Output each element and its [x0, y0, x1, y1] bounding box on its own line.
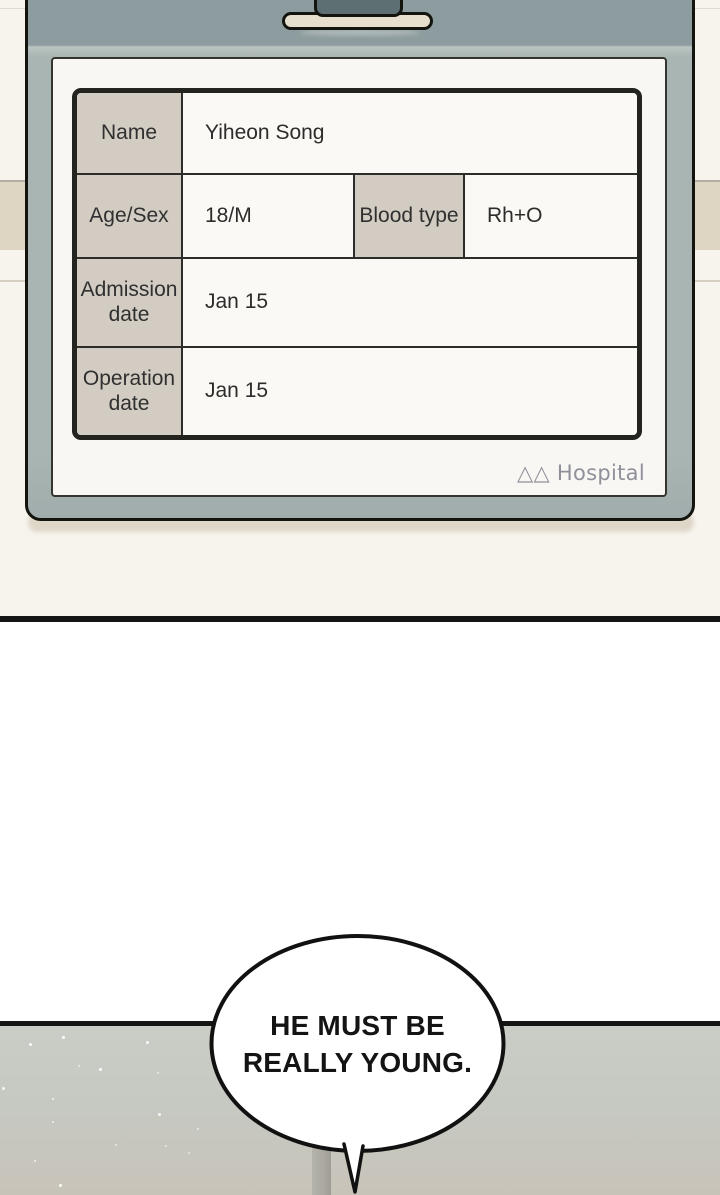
sparkle-dot [52, 1121, 54, 1123]
speech-bubble-tail [344, 1144, 363, 1192]
sparkle-dot [29, 1043, 32, 1046]
sparkle-dot [115, 1144, 117, 1146]
speech-bubble-text: HE MUST BE REALLY YOUNG. [212, 1007, 503, 1081]
name-label-cell: Name [77, 93, 183, 175]
operation-date-value-cell: Jan 15 [183, 348, 637, 435]
clip-highlight [300, 29, 420, 36]
sparkle-dot [158, 1113, 161, 1116]
sparkle-dot [146, 1041, 149, 1044]
sparkle-dot [78, 1065, 80, 1067]
name-value-cell: Yiheon Song [183, 93, 637, 175]
age-sex-value-cell: 18/M [183, 175, 353, 259]
speech-line-2: REALLY YOUNG. [212, 1044, 503, 1081]
sparkle-dot [157, 1072, 159, 1074]
blood-type-value-cell: Rh+O [465, 175, 637, 259]
age-sex-label-cell: Age/Sex [77, 175, 183, 259]
sparkle-dot [52, 1098, 54, 1100]
sparkle-dot [99, 1068, 102, 1071]
speech-line-1: HE MUST BE [212, 1007, 503, 1044]
panel-divider-top [0, 616, 720, 622]
sparkle-dot [2, 1087, 5, 1090]
comic-panel: Name Yiheon Song Age/Sex 18/M Blood type… [0, 0, 720, 1195]
admission-date-label-cell: Admission date [77, 259, 183, 348]
blood-type-label-cell: Blood type [353, 175, 465, 259]
sparkle-dot [59, 1184, 62, 1187]
sparkle-dot [62, 1036, 65, 1039]
clipboard-clip-tab [314, 0, 403, 17]
operation-date-label-cell: Operation date [77, 348, 183, 435]
admission-date-value-cell: Jan 15 [183, 259, 637, 348]
hospital-logo-text: △△ Hospital [420, 461, 645, 485]
sparkle-dot [165, 1145, 167, 1147]
sparkle-dot [34, 1160, 36, 1162]
patient-chart-table: Name Yiheon Song Age/Sex 18/M Blood type… [72, 88, 642, 440]
